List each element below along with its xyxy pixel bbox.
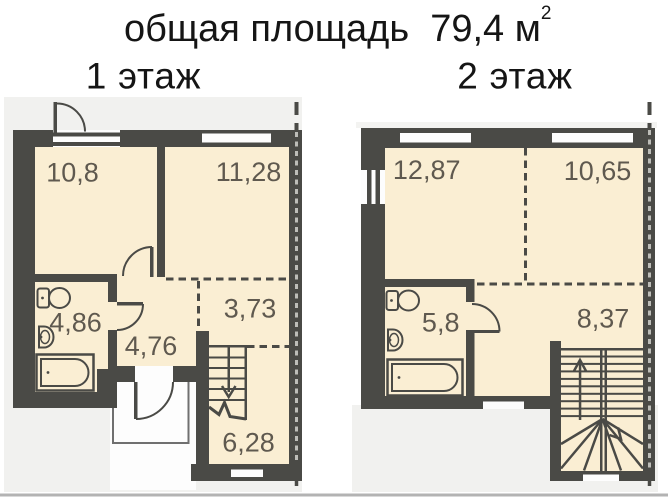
- svg-text:8,37: 8,37: [577, 304, 630, 334]
- svg-text:12,87: 12,87: [393, 155, 461, 185]
- svg-text:10,65: 10,65: [564, 156, 632, 186]
- svg-text:5,8: 5,8: [422, 308, 460, 338]
- svg-text:10,8: 10,8: [46, 158, 99, 188]
- svg-text:4,76: 4,76: [125, 331, 178, 361]
- svg-text:6,28: 6,28: [222, 428, 275, 458]
- svg-text:общая площадь 79,4 м2: общая площадь 79,4 м2: [124, 3, 551, 50]
- svg-text:3,73: 3,73: [224, 294, 277, 324]
- svg-text:1 этаж: 1 этаж: [86, 56, 202, 97]
- svg-text:2 этаж: 2 этаж: [457, 56, 573, 97]
- svg-text:11,28: 11,28: [216, 157, 282, 187]
- svg-text:4,86: 4,86: [49, 308, 102, 338]
